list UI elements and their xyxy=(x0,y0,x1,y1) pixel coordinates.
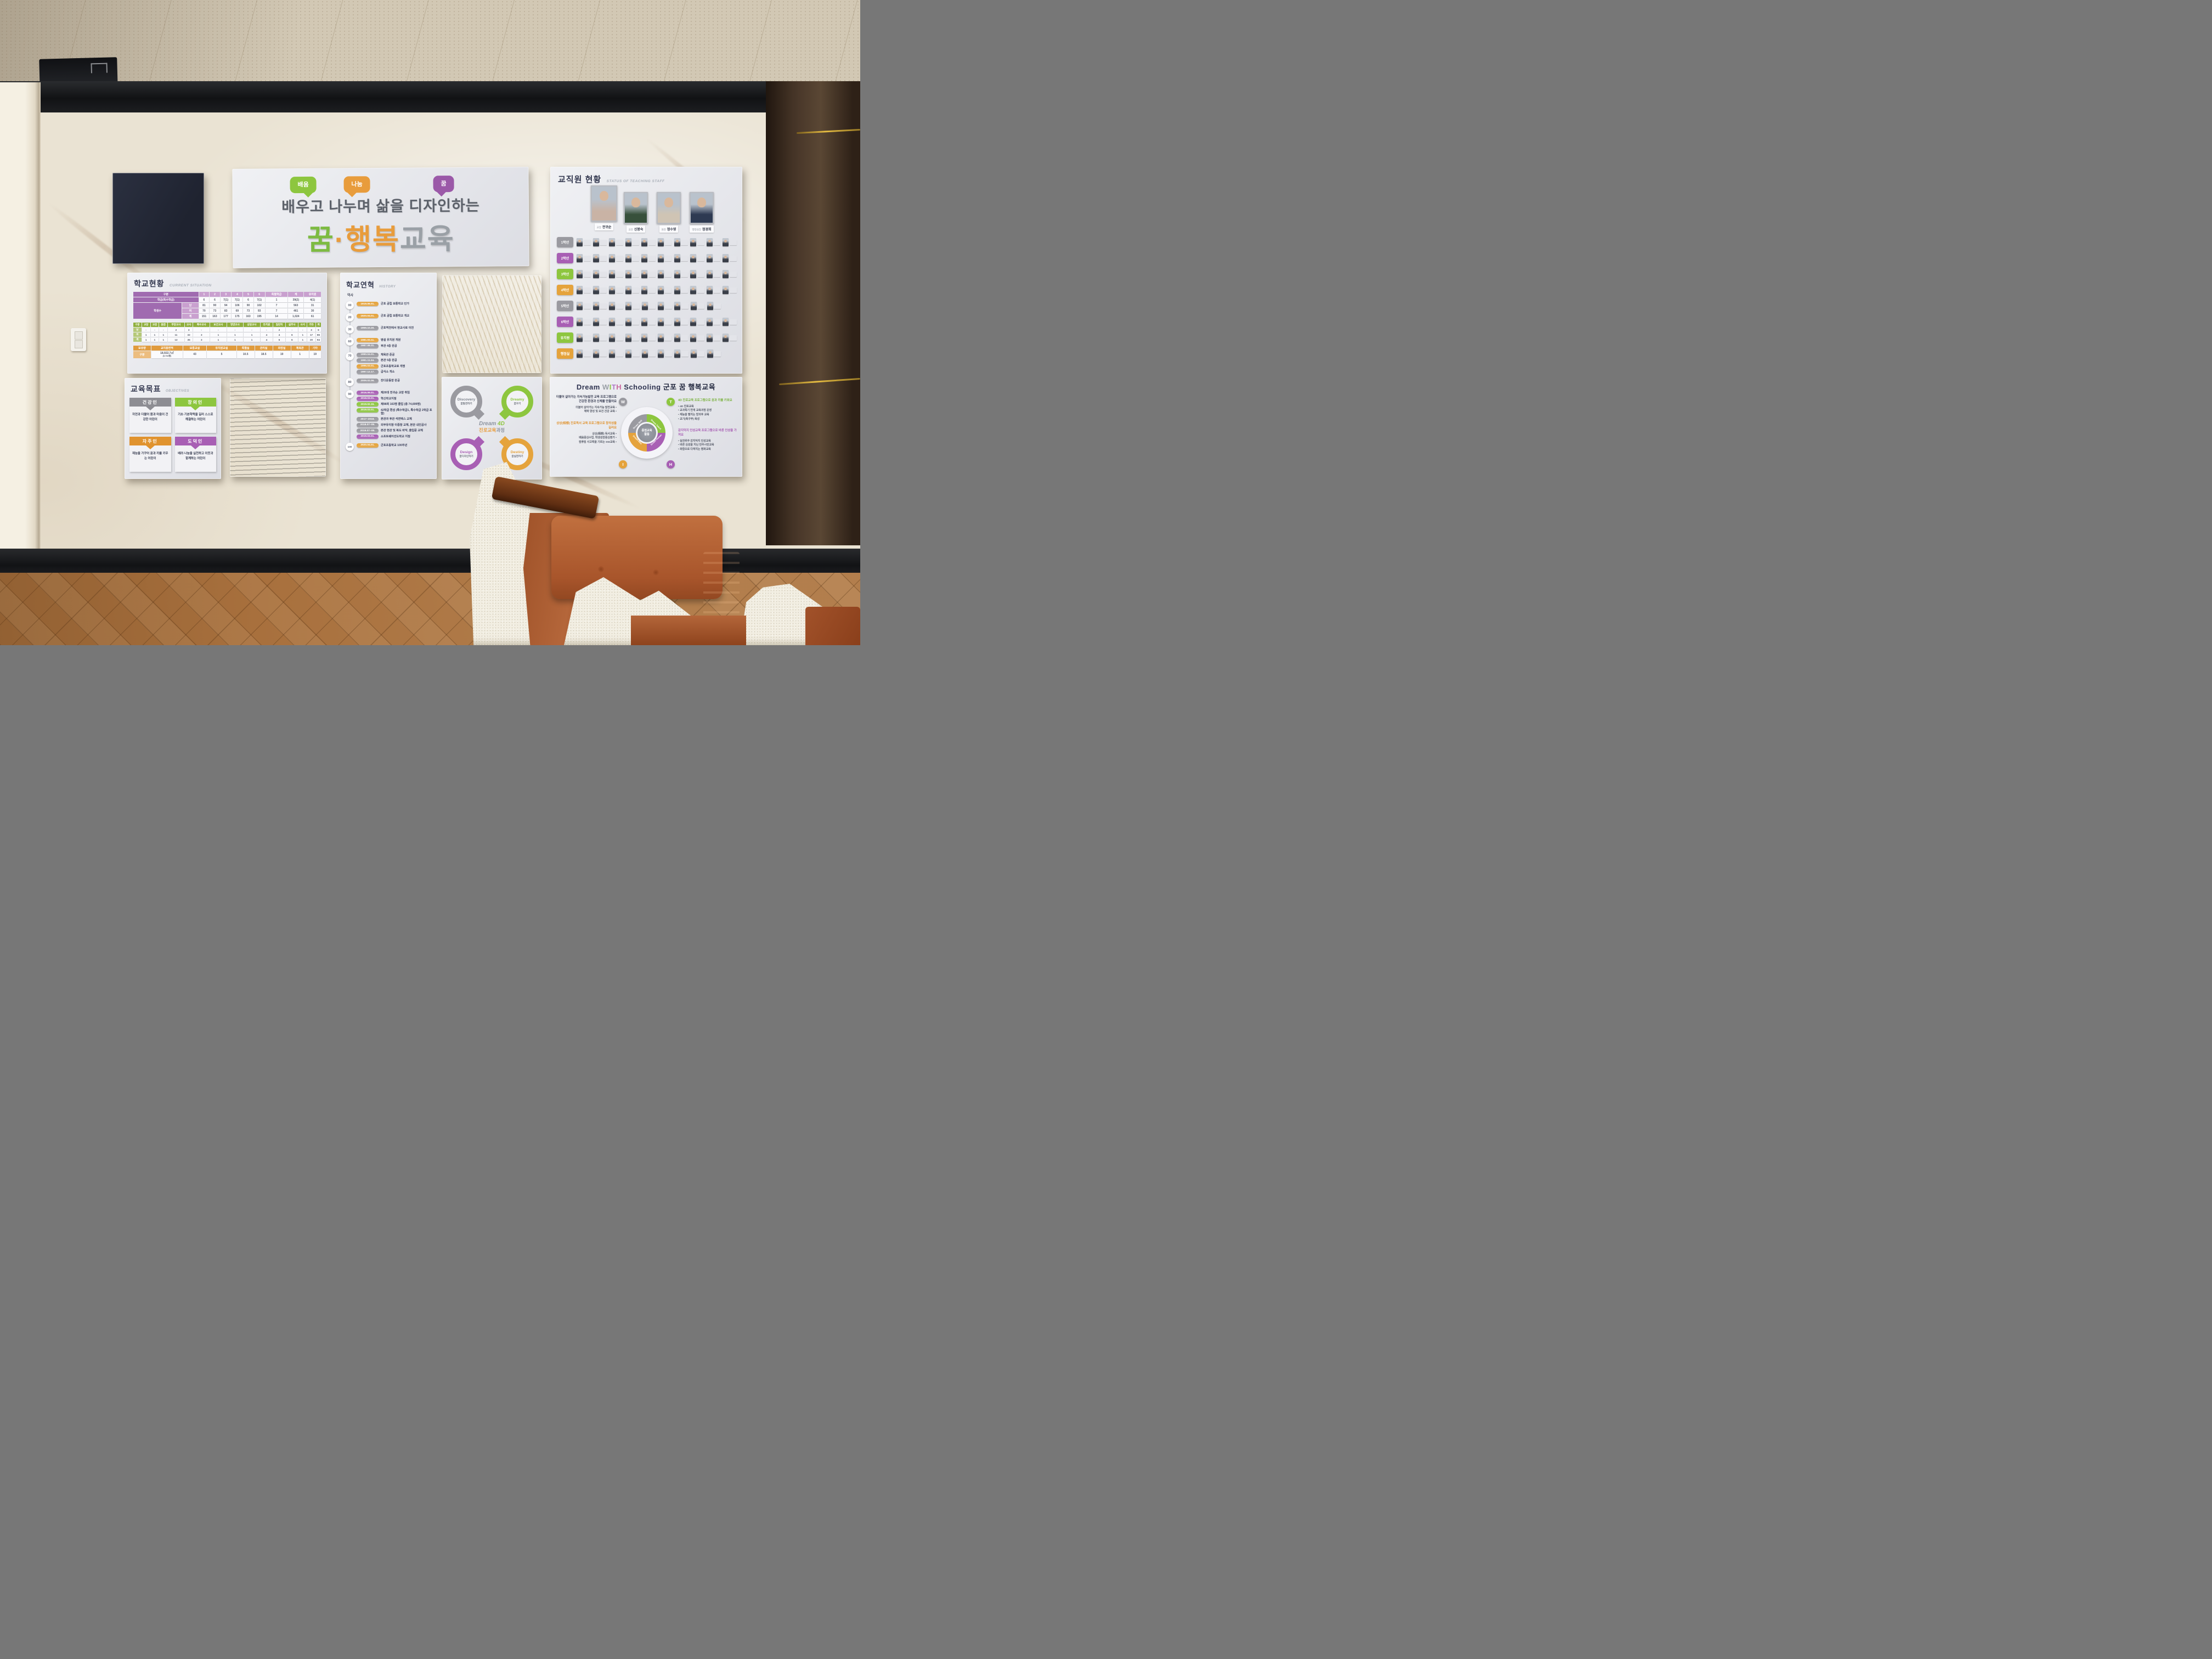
staff-photo xyxy=(577,318,583,326)
student-count: 30 xyxy=(304,308,321,313)
cs-title: 학교현황 xyxy=(134,279,165,288)
navy-blank-panel xyxy=(112,173,204,264)
leader-card: 교감신봉숙 xyxy=(624,192,648,233)
staff-name-tag xyxy=(584,272,591,277)
staff-name-tag xyxy=(648,287,656,293)
staff-name-tag xyxy=(616,272,623,277)
staff-photo-cell xyxy=(690,318,707,326)
ring-disc: Design꿈디자인하기 xyxy=(450,438,482,470)
class-count: 1 xyxy=(266,297,288,302)
history-event-text: 잔디운동장 완공 xyxy=(381,379,400,383)
class-table-header: 1 xyxy=(199,292,210,297)
with-badge-T: T xyxy=(667,398,675,406)
staff-name-tag xyxy=(713,287,720,293)
staff-photo xyxy=(609,254,615,262)
staffing-count: 1 xyxy=(227,337,244,342)
with-section-headline: 감지덕지 인성교육 프로그램으로 바른 인성을 가져요 xyxy=(678,429,738,438)
dream4d-center-line1: Dream 4D xyxy=(442,421,542,427)
staffing-count: 2 xyxy=(273,328,285,332)
student-count: 83 xyxy=(221,308,232,313)
staff-photo xyxy=(577,270,583,278)
staffing-table: 구분교장교감원감부장교사교사특수교사보건교사영양교사상담교사유치원일반직실무사사… xyxy=(133,322,321,342)
objectives-subtitle: OBJECTIVES xyxy=(166,390,189,393)
facility-area-sub: (5,734평) xyxy=(151,355,183,358)
history-date-pill: 2019.07~08. xyxy=(357,428,379,433)
staff-photo-cell xyxy=(577,318,593,326)
history-event-text: 체육관 준공 xyxy=(381,353,394,357)
staff-photo-cell xyxy=(707,349,724,358)
history-date-pill: 1996.03.01. xyxy=(357,364,379,369)
staff-name-tag xyxy=(664,319,672,325)
dream4d-center-line2: 진로교육과정 xyxy=(442,427,542,433)
staff-row-label: 4학년 xyxy=(557,285,573,295)
staff-name-tag xyxy=(697,351,704,357)
staffing-row-label: 계 xyxy=(133,337,142,342)
staff-photo xyxy=(658,302,664,310)
staff-photo xyxy=(625,334,631,342)
staff-photo xyxy=(707,286,713,294)
with-section-bullets: 더불어 살아가는 지속가능 발전교육 •체력 양성 및 보건 건강 교육 • xyxy=(555,406,617,414)
staffing-header: 교장 xyxy=(142,323,150,327)
staff-photo xyxy=(658,270,664,278)
staff-row-행정실: 행정실 xyxy=(557,348,739,359)
staff-name-tag xyxy=(616,256,623,261)
speech-bubble-배움: 배움 xyxy=(290,177,316,193)
staff-photo xyxy=(641,270,647,278)
history-event: 1919.06.01.군포 공립 보통학교 인가 xyxy=(357,302,432,306)
staff-photo xyxy=(690,334,696,342)
leader-photo xyxy=(591,185,617,222)
yellow-fabric-panel xyxy=(442,275,541,373)
staffing-count: - xyxy=(159,328,167,332)
history-date-pill: 1920.04.01. xyxy=(357,314,379,318)
staff-photo-cell xyxy=(625,270,642,278)
student-count: 163 xyxy=(210,314,220,319)
history-date-pill: 2020.04.01. xyxy=(357,443,379,448)
staff-photo-cell xyxy=(641,270,658,278)
staff-photo-cell xyxy=(658,286,674,294)
staff-photo xyxy=(609,270,615,278)
with-bullet: 체력 양성 및 보건 건강 교육 • xyxy=(555,410,617,414)
staffing-count: - xyxy=(193,328,210,332)
objective-cards: 건강인자연과 더불어 몸과 마음이 건강한 어린이창의인기초·기본학력을 길러 … xyxy=(129,398,216,472)
history-board: 학교연혁 HISTORY 역사 001919.06.01.군포 공립 보통학교 … xyxy=(340,273,437,479)
staffing-count: 1 xyxy=(227,332,244,337)
class-table-header: 계 xyxy=(288,292,303,297)
staff-photo xyxy=(723,254,729,262)
ring-label-en: Discovery xyxy=(458,398,476,402)
staff-photo-cell xyxy=(707,286,723,294)
class-count: 6 xyxy=(199,297,210,302)
staff-photo xyxy=(674,286,680,294)
student-count: 7 xyxy=(266,303,288,308)
facility-header: 화장실 xyxy=(273,346,291,351)
staff-name-tag xyxy=(697,287,704,293)
staff-photo xyxy=(625,238,631,246)
leader-role: 행정실장 xyxy=(692,228,701,231)
staff-photo xyxy=(723,318,729,326)
objective-card-창의인: 창의인기초·기본학력을 길러 스스로 해결하는 어린이 xyxy=(175,398,217,433)
slogan-banner: 배움나눔꿈 배우고 나누며 삶을 디자인하는 꿈·행복교육 xyxy=(232,167,529,268)
staff-name-tag xyxy=(584,256,591,261)
staffing-count: - xyxy=(244,328,260,332)
staff-name-tag xyxy=(600,319,607,325)
staff-photo-cell xyxy=(674,254,691,262)
history-event: 1920.04.01.군포 공립 보통학교 개교 xyxy=(357,314,432,318)
staff-name-tag xyxy=(600,240,607,245)
staffing-header: 일반직 xyxy=(273,323,285,327)
banner-word: · xyxy=(335,224,346,256)
staff-photo-cell xyxy=(674,286,691,294)
staffing-header: 사서 xyxy=(298,323,307,327)
history-event: 1997.12.17.급식소 개소 xyxy=(357,370,432,374)
staff-name-tag xyxy=(730,240,737,245)
with-title-part: Dream xyxy=(577,383,602,391)
staff-name-tag xyxy=(730,272,737,277)
class-count: 7(1) xyxy=(232,297,242,302)
staff-photo-cell xyxy=(642,302,658,310)
staff-name-tag xyxy=(665,351,672,357)
history-date-pill: 1991.11.04. xyxy=(357,358,379,363)
staff-photo xyxy=(577,254,583,262)
facility-header: 보통교실 xyxy=(183,346,207,351)
class-table-header: 3 xyxy=(221,292,232,297)
staff-name-tag xyxy=(584,351,591,357)
student-count: 90 xyxy=(243,303,253,308)
staff-photo-cell xyxy=(691,302,707,310)
staff-photo-cell xyxy=(641,318,658,326)
with-bullet: • 화합으로 다져지는 평화교육 xyxy=(678,448,738,452)
history-node: 30 xyxy=(346,325,354,334)
staff-photo xyxy=(723,334,729,342)
staffing-count: - xyxy=(210,328,227,332)
staff-name-tag xyxy=(616,287,623,293)
staff-photo-cell xyxy=(625,238,642,246)
teaching-staff-board: 교직원 현황 STATUS OF TEACHING STAFF 교장전귀순교감신… xyxy=(550,167,742,374)
staffing-count: 1 xyxy=(298,337,307,342)
ceiling-soffit xyxy=(0,81,860,112)
staffing-header: 보건교사 xyxy=(210,323,227,327)
leader-name: 정경희 xyxy=(702,228,712,232)
staff-photo-cell xyxy=(609,286,625,294)
student-count: 163 xyxy=(243,314,253,319)
staffing-count: - xyxy=(261,328,273,332)
staffing-header: 상담교사 xyxy=(244,323,260,327)
staff-photo xyxy=(674,302,680,310)
staff-photo-cell xyxy=(690,238,707,246)
staff-name-tag xyxy=(616,319,623,325)
cushion-button xyxy=(598,566,604,572)
leader-face xyxy=(664,198,673,207)
history-event-text: 본관 현관 및 복도 바닥, 출입문 교체 xyxy=(381,428,423,433)
facility-header: 유치원교실 xyxy=(207,346,236,351)
staff-photo-cell xyxy=(723,254,739,262)
staff-name-tag xyxy=(697,335,704,341)
staffing-count: 9 xyxy=(316,328,321,332)
objective-card-자주인: 자주인재능을 가꾸어 꿈과 끼를 키우는 어린이 xyxy=(129,437,171,472)
history-event-text: 42학급 편성 (특수학급1, 특수학급 2학급 포함) xyxy=(381,408,432,416)
staff-photo-cell xyxy=(690,270,707,278)
staff-board-title: 교직원 현황 xyxy=(558,175,601,184)
staffing-count: - xyxy=(151,328,159,332)
banner-line2: 꿈·행복교육 xyxy=(233,215,529,258)
history-node: 70 xyxy=(346,352,354,360)
student-count: 175 xyxy=(232,314,242,319)
history-event-text: 소프트웨어선도학교 지정 xyxy=(381,435,410,439)
staff-photo xyxy=(658,238,664,246)
objectives-board: 교육목표 OBJECTIVES 건강인자연과 더불어 몸과 마음이 건강한 어린… xyxy=(125,378,221,479)
staff-photo-cell xyxy=(609,334,625,342)
with-badge-I: I xyxy=(619,460,627,469)
with-core-line2: 활동 xyxy=(644,433,650,437)
history-date-pill: 1997.12.17. xyxy=(357,370,379,374)
staffing-header: 계 xyxy=(316,323,321,327)
light-switch xyxy=(71,328,86,351)
staff-name-tag xyxy=(600,351,607,357)
banner-word: 꿈 xyxy=(307,224,335,256)
history-axis-label: 역사 xyxy=(347,292,353,297)
student-count: 563 xyxy=(288,303,303,308)
facility-count: 5 xyxy=(207,351,236,358)
staff-photo xyxy=(625,254,631,262)
staff-photo-cell xyxy=(658,238,674,246)
student-count: 7 xyxy=(266,308,288,313)
staff-name-tag xyxy=(648,240,656,245)
staffing-count: 4 xyxy=(273,332,285,337)
history-group-90: 902016.09.01.제26대 전귀순 교장 취임2018.03.01.혁신… xyxy=(346,390,432,439)
history-date-pill: 1959.10.20. xyxy=(357,326,379,330)
wood-pillar xyxy=(766,81,860,545)
staff-photo-cell xyxy=(707,334,723,342)
history-event-text: 군포초등학교 100주년 xyxy=(381,443,407,448)
students-row-label: 남 xyxy=(182,303,198,308)
staff-photo xyxy=(593,302,599,310)
staff-photo-cell xyxy=(658,302,674,310)
staff-name-tag xyxy=(648,303,656,309)
staff-photo-cell xyxy=(723,270,739,278)
history-title: 학교연혁 xyxy=(346,281,375,289)
ring-disc: Dreamy꿈꾸기 xyxy=(501,386,533,417)
staffing-count: 1 xyxy=(159,332,167,337)
staff-photo xyxy=(625,302,631,310)
history-event: 1959.10.20.군포역전에서 현교사로 이전 xyxy=(357,326,432,330)
chair-armrest-cushion xyxy=(551,516,723,599)
staff-name-tag xyxy=(713,319,720,325)
history-group-00: 001919.06.01.군포 공립 보통학교 인가 xyxy=(346,301,432,309)
staff-name-tag xyxy=(664,272,672,277)
staff-name-tag xyxy=(681,272,688,277)
dream-4d-board: Discovery꿈발견하기Dreamy꿈꾸기Design꿈디자인하기Desti… xyxy=(442,377,542,479)
staff-photo xyxy=(707,318,713,326)
staff-name-tag xyxy=(600,287,607,293)
objective-card-header: 자주인 xyxy=(129,437,171,445)
history-group-70: 701990.04.01.체육관 준공1991.11.04.본관 5층 완공19… xyxy=(346,352,432,375)
staff-name-tag xyxy=(713,256,720,261)
history-event: 2019.03.01.42학급 편성 (특수학급1, 특수학급 2학급 포함) xyxy=(357,408,432,416)
history-date-pill: 2019.03.01. xyxy=(357,435,379,439)
staffing-header: 기타 xyxy=(307,323,315,327)
staff-name-tag xyxy=(697,319,704,325)
class-table-header: 5 xyxy=(243,292,253,297)
with-title-part: T xyxy=(612,383,616,391)
chair-seat-front xyxy=(631,616,746,645)
staff-photo xyxy=(577,286,583,294)
staff-row-label: 1학년 xyxy=(557,237,573,247)
class-table-header: 4 xyxy=(232,292,242,297)
staff-photo xyxy=(593,270,599,278)
staff-name-tag xyxy=(584,287,591,293)
staff-name-tag xyxy=(730,256,737,261)
with-bullet: • 교과특기 연계 교육과정 운영 xyxy=(678,409,738,413)
ring-disc: Discovery꿈발견하기 xyxy=(450,386,482,417)
staffing-count: 13 xyxy=(168,337,184,342)
staff-row-2학년: 2학년 xyxy=(557,253,739,263)
objective-card-header: 창의인 xyxy=(175,398,217,407)
staffing-count: 6 xyxy=(273,337,285,342)
staff-photo-cell xyxy=(625,254,642,262)
cs-tables: 구분123456특별학급계유치원학급(특수학급)667(1)7(1)67(1)1… xyxy=(133,291,321,359)
history-event: 2018.07~09.외부유리창 이중창 교체, 본관 내진공사 xyxy=(357,423,432,427)
facility-table: 보유량교지총면적보통교실유치원교실특별실관리실화장실체육관기타구분18,922.… xyxy=(133,345,321,359)
staff-photo-cell xyxy=(609,238,625,246)
staff-row-6학년: 6학년 xyxy=(557,317,739,327)
history-event: 2019.03.01.소프트웨어선도학교 지정 xyxy=(357,435,432,439)
staff-photo xyxy=(707,270,713,278)
wood-blank-panel xyxy=(230,378,326,477)
history-date-pill: 1981.03.11. xyxy=(357,338,379,342)
staff-name-tag xyxy=(584,335,591,341)
staff-photo-cell xyxy=(690,254,707,262)
staff-photo-cell xyxy=(658,334,674,342)
banner-word: 교육 xyxy=(400,223,455,256)
staff-photo xyxy=(707,238,713,246)
staff-name-tag xyxy=(616,303,623,309)
staffing-count: - xyxy=(298,328,307,332)
staff-photo xyxy=(641,334,647,342)
staff-photo-cell xyxy=(577,334,593,342)
history-event-text: 급식소 개소 xyxy=(381,370,394,374)
staffing-header: 교사 xyxy=(185,323,193,327)
history-events: 2009.02.06.잔디운동장 완공 xyxy=(357,378,432,386)
staff-photo xyxy=(642,349,648,358)
staff-photo xyxy=(690,286,696,294)
objective-card-header: 도덕인 xyxy=(175,437,217,445)
staffing-count: 1 xyxy=(142,332,150,337)
staff-photo-cell xyxy=(641,334,658,342)
history-date-pill: 2009.02.06. xyxy=(357,379,379,383)
staff-photo xyxy=(625,318,631,326)
staff-photo-cell xyxy=(641,254,658,262)
staffing-count: 2 xyxy=(168,328,184,332)
history-date-pill: 1919.06.01. xyxy=(357,302,379,306)
staff-photo-cell xyxy=(707,270,723,278)
staff-photo xyxy=(593,254,599,262)
history-group-80: 802009.02.06.잔디운동장 완공 xyxy=(346,378,432,386)
student-count: 93 xyxy=(254,308,265,313)
ring-label-ko: 꿈꾸기 xyxy=(514,402,521,405)
staff-photo xyxy=(609,302,615,310)
class-table-header: 6 xyxy=(254,292,265,297)
chair-leather-right xyxy=(805,607,860,645)
facility-header: 기타 xyxy=(309,346,321,351)
with-bullet: 상상(相想) 독서교육 • xyxy=(555,432,617,437)
staffing-count: 1 xyxy=(244,337,260,342)
staff-row-유치원: 유치원 xyxy=(557,332,739,343)
staffing-count: 1 xyxy=(151,332,159,337)
student-count: 102 xyxy=(254,303,265,308)
wall-corner-column xyxy=(0,82,41,573)
staff-photo-cell xyxy=(593,349,610,358)
staff-photo-cell xyxy=(690,286,707,294)
staff-photo xyxy=(577,334,583,342)
staff-photo xyxy=(658,254,664,262)
staff-row-5학년: 5학년 xyxy=(557,301,739,311)
history-date-pill: 2017~2018. xyxy=(357,417,379,421)
class-table-header: 특별학급 xyxy=(266,292,288,297)
objectives-title: 교육목표 xyxy=(131,385,161,393)
dream-with-schooling-board: Dream WITH Schooling 군포 꿈 행복교육 더불어 살아가는 … xyxy=(550,377,742,477)
staff-photo-cell xyxy=(723,334,739,342)
class-count: 4(1) xyxy=(304,297,321,302)
leader-name-tag: 행정실장정경희 xyxy=(690,225,713,233)
staff-name-tag xyxy=(681,319,688,325)
staff-photo-cell xyxy=(641,286,658,294)
staff-photo xyxy=(723,270,729,278)
staff-photo xyxy=(593,334,599,342)
staffing-count: 1 xyxy=(210,337,227,342)
cs-subtitle: CURRENT SITUATION xyxy=(170,284,212,287)
staff-photo xyxy=(658,318,664,326)
staff-photo-cell xyxy=(609,270,625,278)
staff-name-tag xyxy=(632,335,639,341)
facility-count: 10.5 xyxy=(237,351,255,358)
dream4d-center-part: Dream xyxy=(479,421,498,427)
staff-row-label: 6학년 xyxy=(557,317,573,327)
staff-photo-cell xyxy=(593,334,610,342)
staffing-header: 원감 xyxy=(159,323,167,327)
staff-name-tag xyxy=(697,256,704,261)
staff-photo-cell xyxy=(674,349,691,358)
staff-photo-cell xyxy=(658,254,674,262)
history-date-pill: 1987.08.31. xyxy=(357,344,379,348)
with-bullet: 배움중심수업, 학생성장중심평가 • xyxy=(555,436,617,441)
facility-header: 관리실 xyxy=(255,346,273,351)
with-section-headline: 상상(相想) 진로독서 교육 프로그램으로 창의성을 길러요 xyxy=(555,422,617,431)
with-bullet: • 교기(축구부) 육성 xyxy=(678,417,738,422)
vent-bracket xyxy=(91,63,107,74)
staffing-count: - xyxy=(142,328,150,332)
students-row-label: 계 xyxy=(182,314,198,319)
staff-photo-cell xyxy=(593,286,610,294)
student-count: 69 xyxy=(232,308,242,313)
staff-photo-cell xyxy=(593,318,610,326)
staffing-count: 6 xyxy=(286,332,298,337)
history-event-text: 군포역전에서 현교사로 이전 xyxy=(381,326,414,330)
with-bullet: • 바른 심성을 지닌 민주시민교육 xyxy=(678,443,738,448)
with-section-headline: 더불어 살아가는 지속가능발전 교육 프로그램으로 건강한 환경과 신체를 만들… xyxy=(555,396,617,404)
staffing-count: 32 xyxy=(185,332,193,337)
class-table-header: 구분 xyxy=(133,292,199,297)
history-event: 2016.09.01.제26대 전귀순 교장 취임 xyxy=(357,391,432,395)
staff-photo xyxy=(691,349,697,358)
staff-row-label: 2학년 xyxy=(557,253,573,263)
staff-name-tag xyxy=(584,303,591,309)
student-count: 94 xyxy=(221,303,232,308)
facility-header: 체육관 xyxy=(291,346,309,351)
student-count: 1,024 xyxy=(288,314,303,319)
history-node: 00 xyxy=(346,301,354,309)
history-date-pill: 1990.04.01. xyxy=(357,353,379,357)
